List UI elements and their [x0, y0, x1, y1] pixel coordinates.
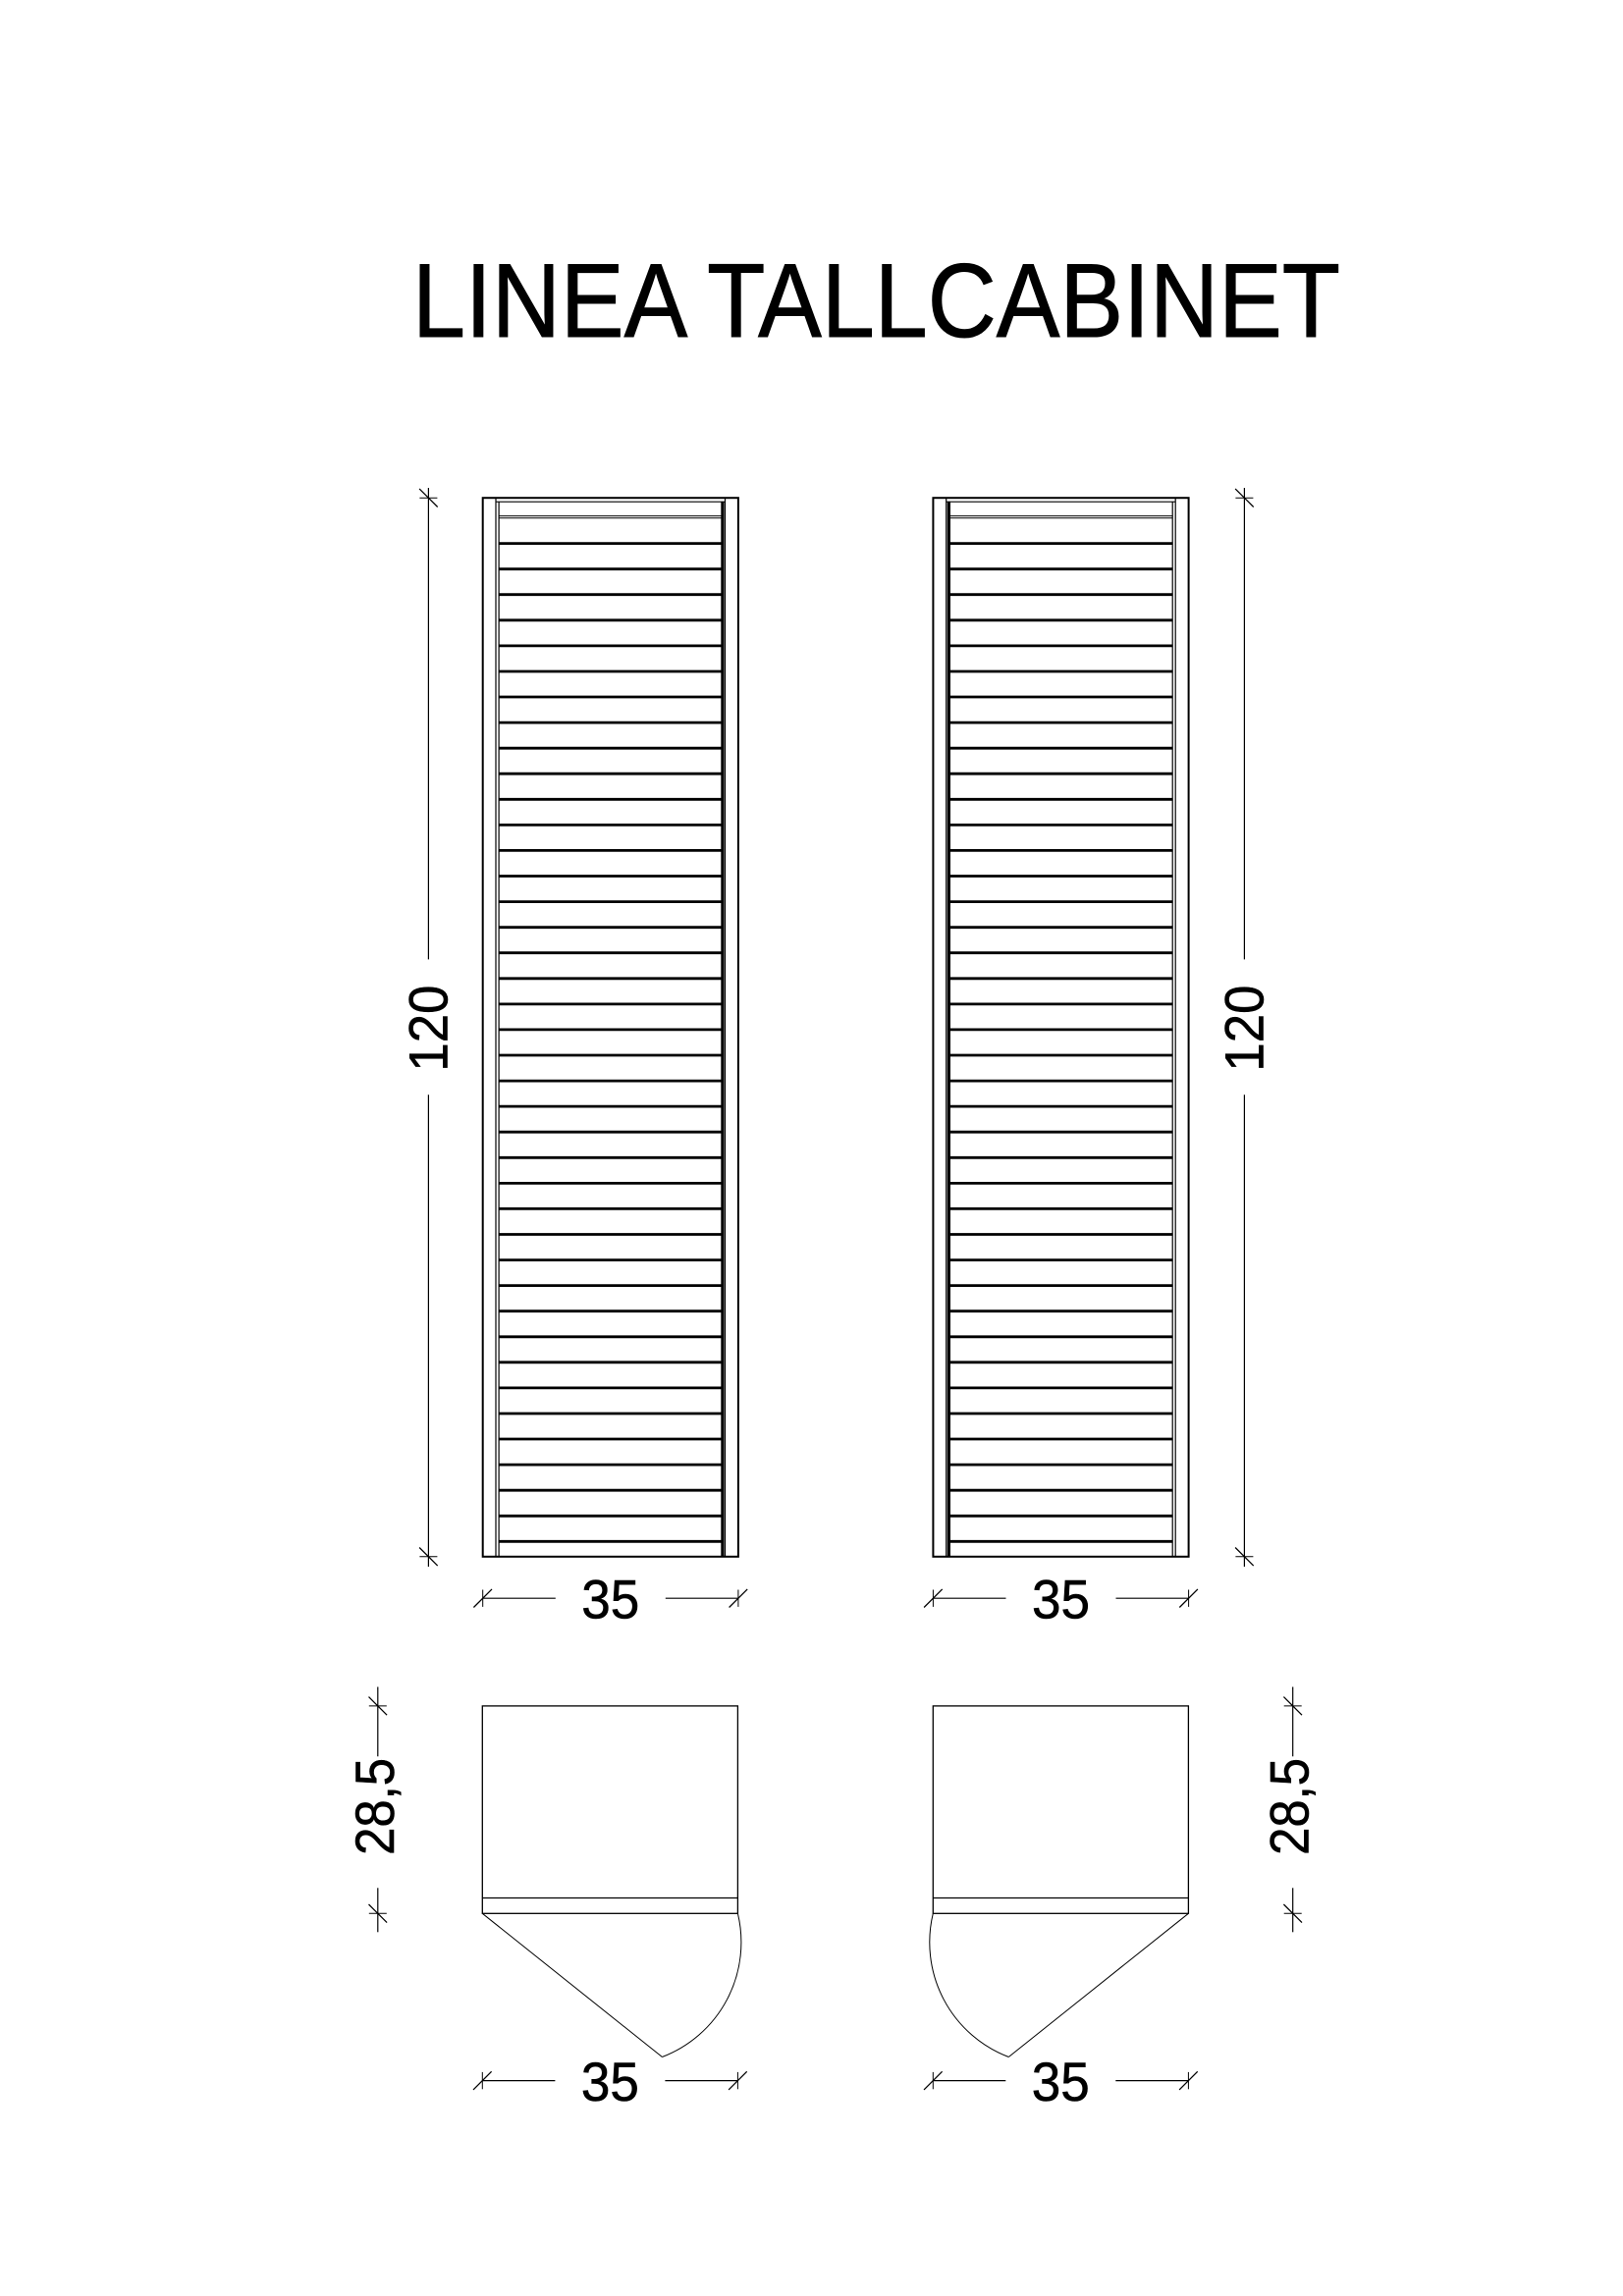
svg-text:LINEA TALLCABINET: LINEA TALLCABINET: [412, 242, 1340, 359]
svg-text:120: 120: [397, 986, 459, 1072]
svg-text:120: 120: [1213, 986, 1274, 1072]
svg-text:35: 35: [1032, 1569, 1090, 1630]
svg-text:35: 35: [1032, 2051, 1090, 2112]
svg-text:28,5: 28,5: [1259, 1758, 1321, 1855]
svg-text:35: 35: [581, 2051, 639, 2112]
svg-text:28,5: 28,5: [344, 1758, 406, 1855]
svg-text:35: 35: [581, 1569, 639, 1630]
